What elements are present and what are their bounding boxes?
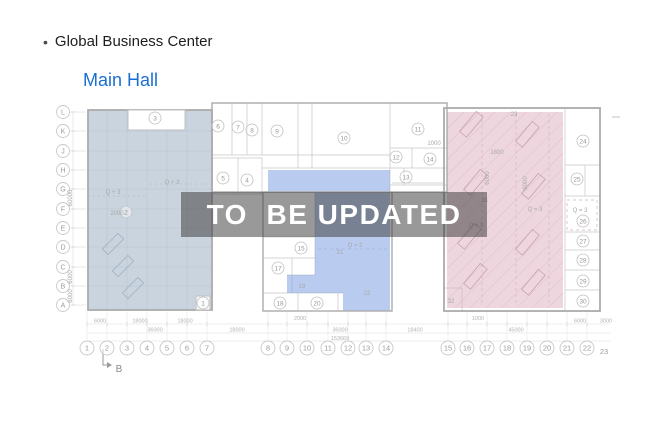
plan-label: 21	[337, 250, 344, 256]
room-number: 12	[392, 154, 400, 161]
grid-col-label: 1	[85, 344, 89, 353]
room-number: 17	[274, 265, 282, 272]
watermark-banner: TO BE UPDATED	[181, 192, 487, 237]
room-number: 10	[340, 135, 348, 142]
plan-label: 1000	[427, 141, 441, 147]
room-number: 15	[297, 245, 305, 252]
room-number: 24	[579, 138, 587, 145]
dimension-label: 3000	[600, 319, 612, 325]
dimension-label: 36000	[332, 328, 347, 334]
plan-label: 22	[364, 291, 371, 297]
dimension-label: 153669	[331, 336, 349, 342]
grid-col-label: 22	[583, 344, 591, 353]
room-number: 14	[426, 156, 434, 163]
room-number: 18	[276, 300, 284, 307]
room-number: 6	[216, 123, 220, 130]
room-number: 30	[579, 298, 587, 305]
grid-col-label: 17	[483, 344, 491, 353]
room-number: 4	[245, 177, 249, 184]
grid-col-label: 10	[303, 344, 311, 353]
grid-col-label: 8	[266, 344, 270, 353]
dimension-label: 18000	[177, 319, 192, 325]
grid-row-label: G	[60, 186, 65, 193]
room-number: 3	[153, 115, 157, 122]
plan-label: 60000	[68, 189, 74, 206]
room-number: 29	[579, 278, 587, 285]
grid-col-label: 2	[105, 344, 109, 353]
grid-col-label: 20	[543, 344, 551, 353]
grid-row-label: F	[61, 206, 65, 213]
grid-col-label: 15	[444, 344, 452, 353]
grid-col-label: 12	[344, 344, 352, 353]
room-number: 1	[201, 300, 205, 307]
grid-col-label: 21	[563, 344, 571, 353]
room-number: 28	[579, 257, 587, 264]
dimension-label: 45000	[508, 328, 523, 334]
plan-label: 19	[299, 284, 306, 290]
plan-label: 1800	[490, 150, 504, 156]
room-number: 8	[250, 127, 254, 134]
room-number: 9	[275, 128, 279, 135]
dimension-label: 18400	[407, 328, 422, 334]
plan-label: 32	[448, 299, 455, 305]
floor-plan-page: • Global Business Center Main Hall	[0, 0, 660, 440]
plan-label: Q + 3	[165, 180, 181, 186]
grid-row-label: L	[61, 109, 65, 116]
plan-label: Q = 2	[348, 243, 364, 249]
dimension-label: 6000	[94, 319, 106, 325]
plan-label: 6000	[485, 171, 491, 185]
room-number: 7	[236, 124, 240, 131]
room-number: 11	[415, 126, 422, 133]
dimension-label: 1000	[472, 316, 484, 322]
room-number: 20	[313, 300, 321, 307]
room-number: 13	[402, 174, 410, 181]
dimension-label: 18000	[229, 328, 244, 334]
grid-col-label: 18	[503, 344, 511, 353]
dimension-label: 18000	[132, 319, 147, 325]
plan-label: 23	[511, 112, 518, 118]
grid-col-label: 9	[285, 344, 289, 353]
plan-label: 6000	[523, 176, 529, 190]
room-number: 2	[124, 209, 128, 216]
grid-col-label: 6	[185, 344, 189, 353]
grid-col-label: 11	[324, 344, 332, 353]
grid-row-label: E	[61, 225, 66, 232]
dimension-label: 6000	[574, 319, 586, 325]
grid-col-label: 5	[165, 344, 169, 353]
plan-label: Q = 3	[528, 207, 544, 213]
room-number: 26	[579, 218, 587, 225]
plan-label: Q = 3	[573, 208, 589, 214]
grid-col-label: 23	[600, 347, 608, 356]
grid-row-label: B	[61, 283, 66, 290]
grid-row-label: J	[61, 148, 65, 155]
plan-label: B	[116, 364, 123, 375]
grid-col-label: 7	[205, 344, 209, 353]
plan-label: 2000	[110, 211, 124, 217]
grid-col-label: 13	[362, 344, 370, 353]
grid-row-label: K	[61, 128, 66, 135]
room-number: 5	[221, 175, 225, 182]
room-number: 27	[579, 238, 587, 245]
grid-col-label: 4	[145, 344, 149, 353]
plan-label: 6000	[68, 270, 74, 284]
plan-label: 6000	[68, 289, 74, 303]
plan-label: Q + 3	[106, 190, 122, 196]
grid-col-label: 14	[382, 344, 390, 353]
grid-row-label: H	[60, 167, 65, 174]
grid-col-label: 3	[125, 344, 129, 353]
dimension-label: 36000	[147, 328, 162, 334]
grid-row-label: C	[60, 264, 65, 271]
dimension-label: 2000	[294, 316, 306, 322]
grid-col-label: 16	[463, 344, 471, 353]
grid-row-label: D	[60, 244, 65, 251]
grid-row-label: A	[61, 302, 66, 309]
room-number: 25	[573, 176, 581, 183]
grid-col-label: 19	[523, 344, 531, 353]
